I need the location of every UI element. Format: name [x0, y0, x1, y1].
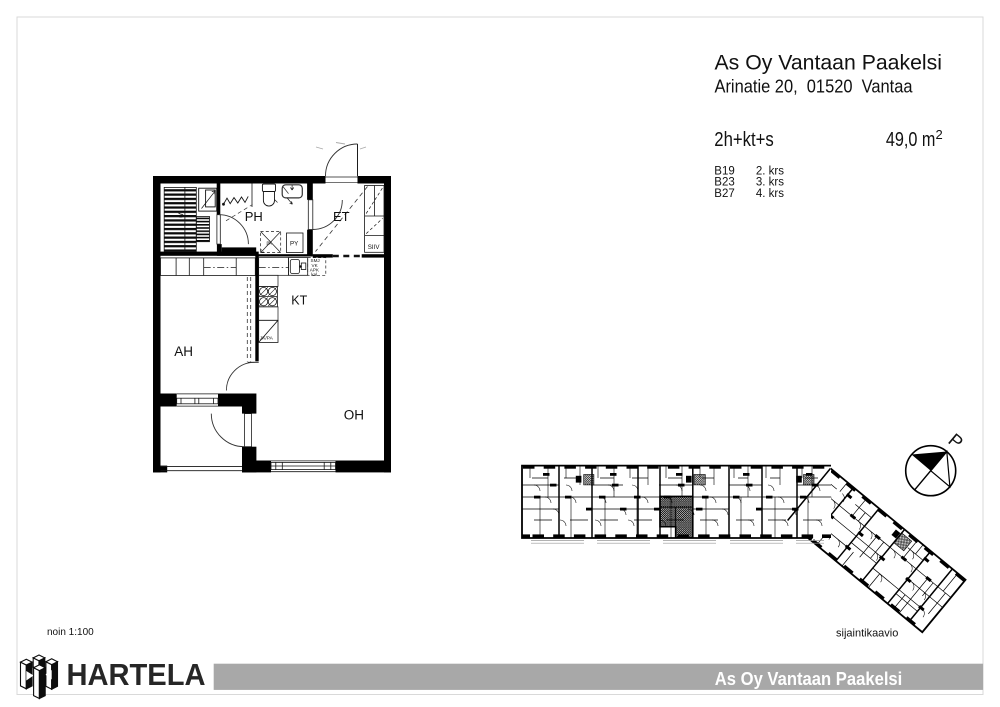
- svg-text:As Oy Vantaan Paakelsi: As Oy Vantaan Paakelsi: [715, 52, 943, 75]
- svg-text:OH: OH: [344, 407, 364, 422]
- svg-text:kal: kal: [311, 272, 317, 277]
- svg-text:sijaintikaavio: sijaintikaavio: [836, 628, 898, 640]
- svg-text:noin 1:100: noin 1:100: [47, 627, 94, 638]
- svg-text:4. krs: 4. krs: [756, 188, 784, 200]
- svg-text:2h+kt+s: 2h+kt+s: [714, 129, 774, 151]
- svg-text:2: 2: [936, 127, 943, 142]
- svg-text:pk: pk: [267, 241, 273, 247]
- svg-text:SIIV: SIIV: [368, 244, 381, 251]
- svg-text:HARTELA: HARTELA: [67, 657, 206, 692]
- svg-text:PH: PH: [245, 209, 263, 224]
- svg-text:S: S: [178, 210, 184, 221]
- svg-text:AH: AH: [174, 344, 193, 359]
- svg-text:Arinatie 20, 01520 Vantaa: Arinatie 20, 01520 Vantaa: [715, 76, 914, 96]
- svg-text:As Oy Vantaan Paakelsi: As Oy Vantaan Paakelsi: [715, 668, 903, 689]
- svg-text:B27: B27: [714, 188, 734, 200]
- svg-text:49,0 m: 49,0 m: [886, 129, 936, 151]
- svg-text:ET: ET: [333, 209, 350, 224]
- svg-text:KT: KT: [291, 293, 307, 307]
- svg-text:PY: PY: [290, 240, 298, 247]
- svg-text:JK/PA: JK/PA: [260, 336, 274, 342]
